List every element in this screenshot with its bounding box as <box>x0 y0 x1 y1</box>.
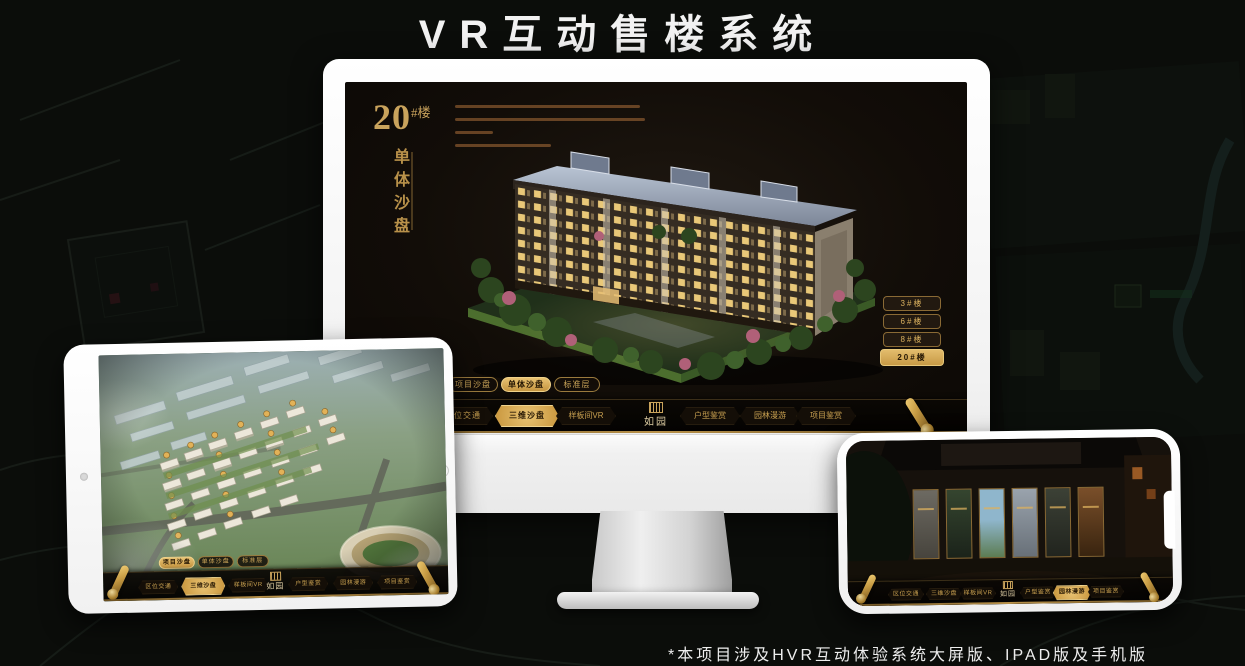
building-3d-render <box>453 140 893 385</box>
floor-button-20[interactable]: 20#楼 <box>880 349 944 366</box>
gallery-panel[interactable] <box>1012 488 1039 558</box>
brand-logo: 如园 <box>1000 581 1016 599</box>
description-line <box>455 131 493 134</box>
gallery-panel[interactable] <box>979 488 1006 558</box>
brand-logo-text: 如园 <box>1000 589 1016 599</box>
footnote: *本项目涉及HVR互动体验系统大屏版、IPAD版及手机版 <box>668 641 1148 665</box>
tablet-screen: 项目沙盘 单体沙盘 标准层 区位交通 三维沙盘 样板间VR 如园 户型鉴赏 园林… <box>98 348 448 601</box>
building-subtitle: 单体沙盘 <box>387 148 411 240</box>
seal-icon <box>270 572 281 581</box>
nav-item-location[interactable]: 区位交通 <box>138 580 178 595</box>
description-line <box>455 105 640 108</box>
phone-device: 区位交通 三维沙盘 样板间VR 如园 户型鉴赏 园林漫游 项目鉴赏 <box>837 429 1182 615</box>
nav-item-3d-sandbox[interactable]: 三维沙盘 <box>926 588 962 601</box>
tab-building-sandbox[interactable]: 单体沙盘 <box>198 556 234 569</box>
tablet-camera <box>80 473 88 481</box>
promo-canvas: VR互动售楼系统 20#楼 单体沙盘 <box>0 0 1245 666</box>
nav-item-project-gallery[interactable]: 项目鉴赏 <box>377 575 417 590</box>
brand-logo-text: 如园 <box>266 581 284 592</box>
floor-button-3[interactable]: 3#楼 <box>883 296 941 311</box>
seal-icon <box>1003 581 1013 589</box>
nav-item-garden-tour[interactable]: 园林漫游 <box>1053 585 1091 601</box>
nav-item-model-room-vr[interactable]: 样板间VR <box>960 587 996 600</box>
tablet-navbar: 区位交通 三维沙盘 样板间VR 如园 户型鉴赏 园林漫游 项目鉴赏 <box>103 565 449 601</box>
nav-item-3d-sandbox[interactable]: 三维沙盘 <box>495 405 559 427</box>
page-title: VR互动售楼系统 <box>0 2 1245 60</box>
subtitle-divider <box>411 152 413 230</box>
nav-item-floorplan[interactable]: 户型鉴赏 <box>288 577 328 592</box>
nav-item-model-room-vr[interactable]: 样板间VR <box>556 407 616 425</box>
nav-item-garden-tour[interactable]: 园林漫游 <box>740 407 800 425</box>
tab-project-sandbox[interactable]: 项目沙盘 <box>448 377 498 392</box>
gallery-panel[interactable] <box>1045 487 1072 557</box>
building-number-label: 20#楼 <box>373 96 431 138</box>
nav-item-3d-sandbox[interactable]: 三维沙盘 <box>181 577 225 596</box>
tab-project-sandbox[interactable]: 项目沙盘 <box>159 556 195 569</box>
floor-button-6[interactable]: 6#楼 <box>883 314 941 329</box>
nav-item-project-gallery[interactable]: 项目鉴赏 <box>1088 585 1124 598</box>
brand-logo-text: 如园 <box>644 413 668 428</box>
floor-button-8[interactable]: 8#楼 <box>883 332 941 347</box>
phone-navbar: 区位交通 三维沙盘 样板间VR 如园 户型鉴赏 园林漫游 项目鉴赏 <box>848 577 1173 607</box>
phone-screen: 区位交通 三维沙盘 样板间VR 如园 户型鉴赏 园林漫游 项目鉴赏 <box>846 437 1173 607</box>
nav-item-floorplan[interactable]: 户型鉴赏 <box>680 407 740 425</box>
tab-standard-floor[interactable]: 标准层 <box>554 377 600 392</box>
seal-icon <box>649 402 663 413</box>
project-aerial-view <box>98 348 448 601</box>
scroll-icon[interactable] <box>902 391 943 433</box>
tab-building-sandbox[interactable]: 单体沙盘 <box>501 377 551 392</box>
nav-item-garden-tour[interactable]: 园林漫游 <box>333 576 373 591</box>
tablet-device: 项目沙盘 单体沙盘 标准层 区位交通 三维沙盘 样板间VR 如园 户型鉴赏 园林… <box>63 337 458 614</box>
nav-item-model-room-vr[interactable]: 样板间VR <box>228 578 268 593</box>
description-line <box>455 118 645 121</box>
brand-logo: 如园 <box>644 402 668 428</box>
gallery-panel[interactable] <box>946 489 973 559</box>
nav-item-floorplan[interactable]: 户型鉴赏 <box>1020 586 1056 599</box>
tab-standard-floor[interactable]: 标准层 <box>237 555 269 568</box>
monitor-stand <box>592 511 732 599</box>
phone-notch <box>1164 491 1176 549</box>
nav-item-project-gallery[interactable]: 项目鉴赏 <box>796 407 856 425</box>
gallery-panel[interactable] <box>1078 487 1105 557</box>
brand-logo: 如园 <box>266 572 284 592</box>
nav-item-location[interactable]: 区位交通 <box>888 588 924 601</box>
gallery-panel[interactable] <box>913 489 940 559</box>
monitor-stand-base <box>557 592 759 609</box>
navbar-gold-line <box>848 600 1173 607</box>
